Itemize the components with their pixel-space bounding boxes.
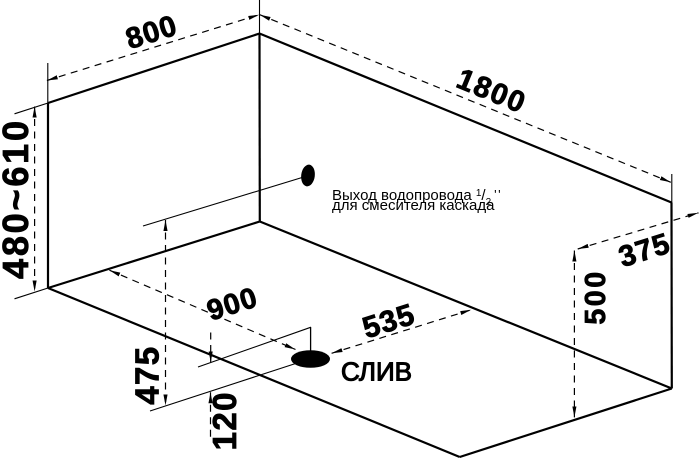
svg-text:480~610: 480~610 (0, 118, 36, 279)
svg-text:475: 475 (128, 345, 165, 404)
svg-text:120: 120 (206, 391, 243, 450)
svg-text:535: 535 (359, 298, 420, 345)
svg-text:800: 800 (122, 9, 182, 56)
svg-text:СЛИВ: СЛИВ (341, 357, 412, 387)
svg-text:для смесителя каскада: для смесителя каскада (332, 197, 495, 214)
svg-text:375: 375 (615, 227, 675, 274)
svg-text:1800: 1800 (452, 62, 531, 120)
svg-text:500: 500 (580, 269, 612, 324)
svg-text:900: 900 (203, 282, 262, 328)
